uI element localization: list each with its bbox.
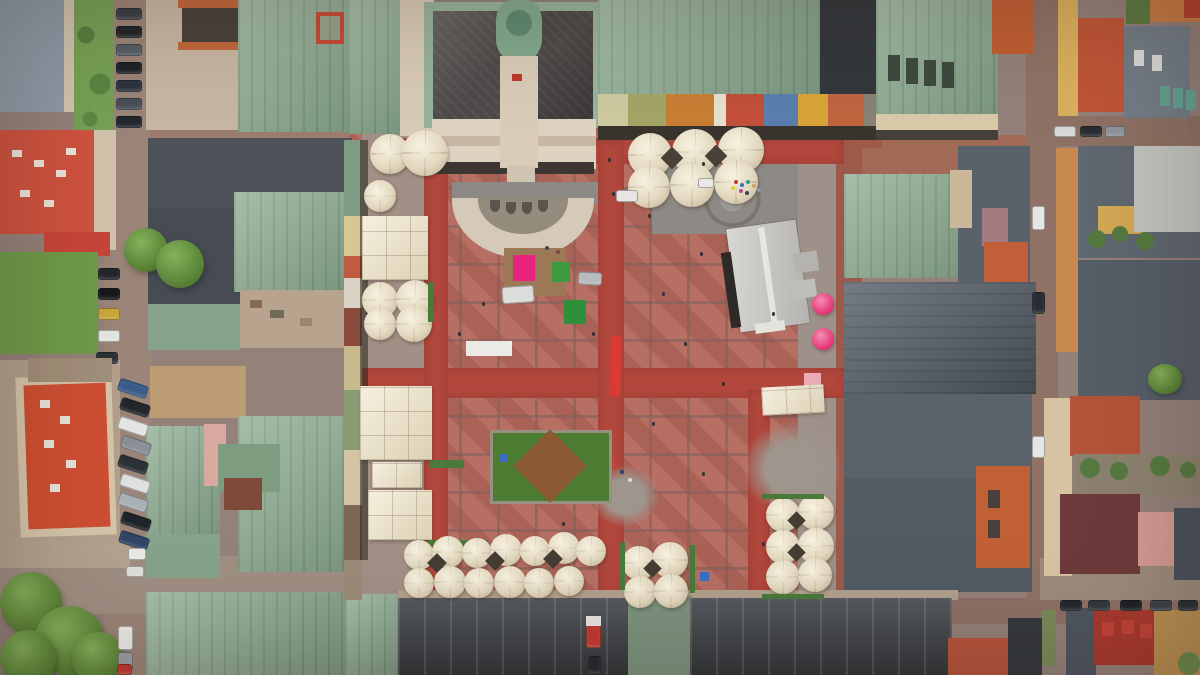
car [98, 288, 120, 300]
canopy-block [362, 216, 428, 280]
roof-vent [44, 200, 54, 207]
car [698, 178, 714, 188]
roof-copper-hall-west [348, 0, 400, 134]
planter [620, 542, 625, 590]
roof-vent [44, 440, 54, 448]
van-white [1032, 206, 1045, 230]
roof-charcoal-se [690, 598, 952, 675]
person [545, 246, 549, 250]
roof-orange-ne [992, 0, 1034, 54]
car [116, 98, 142, 110]
roof-vent [60, 416, 70, 424]
person [608, 158, 611, 162]
garden-blob [1112, 226, 1128, 242]
materials [28, 358, 112, 382]
stair-arch [490, 200, 500, 212]
person [752, 184, 756, 188]
car [1150, 600, 1172, 611]
garden-blob [1180, 462, 1196, 478]
van-white [126, 566, 144, 577]
dormer [888, 55, 900, 81]
person [702, 162, 705, 166]
roof-copper-ne [598, 0, 826, 94]
umbrella [494, 566, 526, 598]
umbrella [798, 558, 832, 592]
tent-box [793, 250, 820, 273]
car [116, 26, 142, 38]
roof-vent [12, 150, 22, 157]
umbrella [364, 180, 396, 212]
dormer [988, 520, 1000, 538]
building-yellow-tr [1058, 0, 1078, 116]
car [1120, 600, 1142, 611]
dormer [906, 58, 918, 84]
roof-vent [34, 160, 44, 167]
umbrella [798, 494, 834, 530]
umbrella [624, 576, 656, 608]
roof-vent [56, 170, 66, 177]
roof-redbrown-sw [224, 478, 262, 510]
stair-arch [506, 202, 516, 214]
roof-silver-tr [1134, 146, 1200, 232]
umbrella-pink [812, 328, 834, 350]
grass-verge [74, 0, 114, 140]
car [98, 330, 120, 342]
canopy-block [360, 386, 432, 460]
garden-blob [1088, 230, 1106, 248]
dormer-white [1152, 55, 1162, 71]
person [734, 180, 738, 184]
car [588, 656, 601, 674]
canopy-block [372, 462, 422, 488]
van-white [616, 190, 638, 202]
person [684, 342, 687, 346]
clutter [270, 310, 284, 318]
car-yellow [98, 308, 120, 320]
car [98, 268, 120, 280]
dormer-teal [1160, 86, 1170, 106]
car [1088, 600, 1110, 611]
building-pink [1138, 512, 1174, 566]
umbrella [464, 568, 494, 598]
white-canopy [761, 384, 824, 415]
sidewalk-sw [0, 540, 130, 568]
person [762, 542, 765, 546]
umbrella [524, 568, 554, 598]
car [116, 62, 142, 74]
person [652, 422, 655, 426]
roof-maroon [1060, 494, 1140, 574]
dormer [988, 490, 1000, 508]
tower-body [500, 56, 538, 168]
facade-strip-w [344, 560, 362, 600]
roof-slate-e-big [844, 282, 1036, 394]
lawn-left [0, 252, 98, 354]
roof-slate-edge [1174, 508, 1200, 580]
car [1032, 436, 1045, 458]
roof-red-left [0, 130, 94, 234]
person [620, 470, 624, 474]
person [746, 180, 750, 184]
roof-copper-s1 [345, 594, 401, 675]
dormer-red [1140, 624, 1152, 638]
roof-orange-hip [976, 466, 1030, 568]
car [116, 44, 142, 56]
roof-dark-s [1008, 618, 1042, 675]
person [757, 188, 761, 192]
tree [156, 240, 204, 288]
umbrella-pink [812, 293, 834, 315]
roof-vent [66, 460, 76, 468]
person [700, 252, 703, 256]
car [116, 80, 142, 92]
dormer [942, 62, 954, 88]
person [702, 472, 705, 476]
skylight-frame [316, 12, 344, 44]
person [731, 186, 735, 190]
person [662, 292, 665, 296]
planter [430, 460, 464, 468]
blue-tarp [500, 454, 508, 462]
green-mat [552, 262, 570, 282]
stair-arch [522, 202, 532, 214]
red-banner [609, 336, 622, 396]
courtyard-ml [240, 290, 346, 348]
umbrella [576, 536, 606, 566]
roof-copper-sw4 [146, 534, 220, 578]
umbrella [404, 568, 434, 598]
person [556, 250, 560, 254]
person [592, 332, 595, 336]
person [612, 462, 616, 466]
roof-redorange-tr [1078, 18, 1124, 112]
roof-vent [66, 148, 76, 155]
dormer [924, 60, 936, 86]
umbrella [364, 308, 396, 340]
blue-tarp [700, 572, 709, 581]
car [116, 116, 142, 128]
roof-gray-tl [0, 0, 64, 112]
car-red [117, 664, 132, 675]
person [772, 312, 775, 316]
roof-copper-sbl [146, 592, 346, 675]
stair-arch [538, 200, 548, 212]
van-white [128, 548, 146, 560]
roof-red-e [1070, 396, 1140, 456]
roof-orange-s [948, 638, 1010, 675]
person [648, 214, 651, 218]
facade-green-s [1042, 610, 1056, 666]
aerial-photo [0, 0, 1200, 675]
umbrella [654, 574, 688, 608]
garden-tr [1126, 0, 1150, 24]
magenta-tent [513, 255, 535, 281]
arcade-e1 [876, 130, 998, 140]
roof-construction-tan [150, 366, 246, 418]
person [722, 382, 725, 386]
roof-copper-ml [234, 192, 346, 292]
car [1178, 600, 1198, 611]
planter [690, 545, 695, 593]
trees-right-edge [1148, 364, 1182, 394]
umbrella [554, 566, 584, 596]
roof-gable-gray [1066, 608, 1096, 675]
tent-box [791, 278, 817, 299]
dormer-red [1122, 620, 1134, 634]
planter [428, 282, 434, 322]
courtyard-dark [182, 4, 244, 44]
umbrella [396, 306, 432, 342]
car [116, 8, 142, 20]
roof-dark-ne [820, 0, 878, 98]
person [612, 192, 615, 196]
roof-vent [20, 190, 30, 197]
green-mat [564, 300, 586, 324]
roof-red-corner [1184, 0, 1200, 18]
clutter [250, 300, 262, 308]
roof-copper-e2 [844, 174, 962, 278]
person [739, 189, 743, 193]
garden-blob [1136, 232, 1154, 250]
dormer-white [1134, 50, 1144, 66]
car [1060, 600, 1082, 611]
canopy-block [368, 490, 432, 540]
person [745, 191, 749, 195]
roof-vent [50, 484, 60, 492]
tower-balcony-flag [512, 74, 522, 81]
clutter [300, 318, 312, 326]
roof-red-construction [24, 383, 111, 530]
umbrella [402, 130, 448, 176]
dormer-red [1102, 622, 1114, 636]
person [562, 522, 565, 526]
white-table [466, 341, 512, 356]
car [1080, 126, 1102, 137]
spire-cap [506, 10, 532, 36]
person [458, 332, 461, 336]
garden-blob [1110, 462, 1128, 480]
car [1054, 126, 1076, 137]
garden-blob [1080, 458, 1100, 478]
dormer-teal [1173, 88, 1183, 108]
person [740, 183, 744, 187]
building-mauve [982, 208, 1008, 246]
car-silver [578, 271, 603, 285]
person [482, 302, 485, 306]
umbrella [766, 560, 800, 594]
roof-vent [40, 400, 50, 408]
bus-roof [586, 616, 601, 626]
planter [762, 494, 824, 499]
person [628, 478, 632, 482]
roof-copper-ml2 [148, 304, 240, 350]
facade-orangetan-e [1056, 148, 1078, 352]
van-white [501, 285, 534, 304]
car [118, 626, 133, 650]
car [1032, 292, 1045, 314]
garden-blob [1150, 456, 1170, 476]
car [1105, 126, 1125, 137]
green-corner-se [1178, 652, 1200, 675]
building-cream-e [950, 170, 972, 228]
dormer-teal [1186, 90, 1196, 110]
planter [762, 594, 824, 599]
